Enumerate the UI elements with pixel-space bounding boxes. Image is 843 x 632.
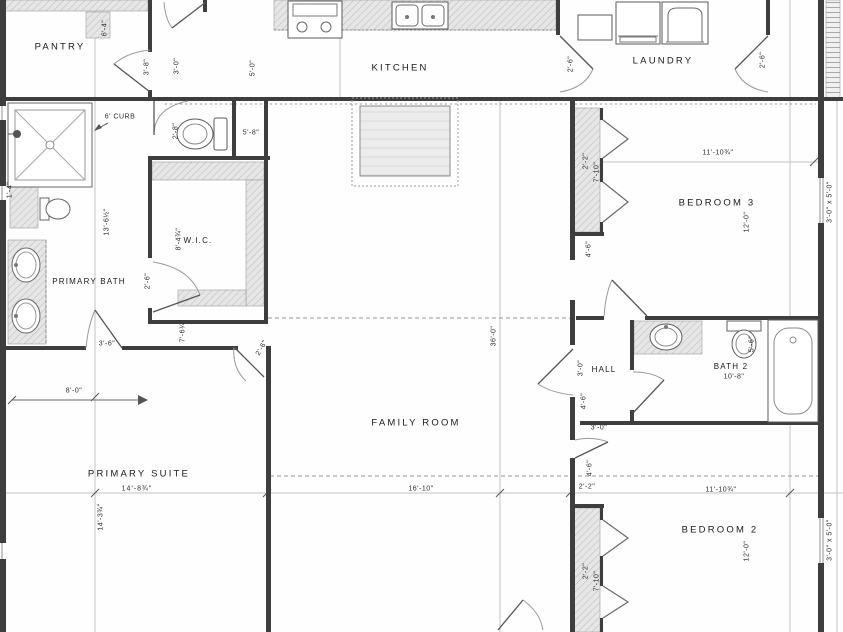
wic-shelf-bottom bbox=[178, 290, 246, 306]
dim-window-bedroom2: 3'-0" x 5'-0" bbox=[827, 519, 834, 561]
dim-b2-closet-width: 7'-10" bbox=[594, 571, 601, 592]
dim-linen-closet: 5'-8" bbox=[243, 130, 259, 137]
dim-hall-a: 3'-0" bbox=[578, 360, 585, 376]
dim-b3-closet-depth: 2'-2" bbox=[583, 153, 590, 169]
shower-head bbox=[13, 130, 21, 138]
toilet-compartment bbox=[10, 186, 38, 228]
dim-b3-wall: 4'-6" bbox=[586, 241, 593, 257]
room-size-bath2: 10'-8" bbox=[724, 374, 745, 381]
dim-b2-jog: 2'-2" bbox=[579, 484, 595, 491]
dim-suite-offset: 8'-0" bbox=[66, 388, 82, 395]
dim-pantry-width: 6'-4" bbox=[102, 20, 109, 36]
dim-wic-length: 7'-6¼" bbox=[180, 320, 187, 343]
dim-door-b: 3'-0" bbox=[174, 58, 181, 74]
floor-plan-drawing bbox=[0, 0, 843, 632]
dim-family-width: 16'-10" bbox=[408, 486, 433, 493]
room-width-bedroom2: 11'-10¾" bbox=[705, 487, 736, 494]
room-label-bedroom3: BEDROOM 3 bbox=[679, 198, 756, 208]
laundry-fixtures bbox=[578, 2, 708, 44]
room-depth-bedroom3: 12'-0" bbox=[744, 212, 751, 233]
room-depth-bedroom2: 12'-0" bbox=[744, 541, 751, 562]
dim-bath-length: 13'-6½" bbox=[104, 208, 111, 235]
floor-plan-canvas: PANTRY KITCHEN LAUNDRY PRIMARY BATH W.I.… bbox=[0, 0, 843, 632]
laundry-cabinet bbox=[578, 15, 612, 40]
dim-hall-door: 3'-0" bbox=[591, 425, 607, 432]
toilet-tank bbox=[214, 118, 227, 150]
room-size-primary-suite: 14'-8¾" bbox=[122, 486, 153, 493]
dim-overall-depth: 36'-0" bbox=[491, 326, 498, 347]
dim-suite-length: 14'-3¾" bbox=[98, 503, 105, 530]
wc-bowl bbox=[46, 199, 70, 219]
wic-shelf-right bbox=[246, 180, 264, 306]
room-label-wic: W.I.C. bbox=[184, 237, 213, 245]
bath2-fixtures bbox=[650, 320, 818, 422]
dim-left-wall: 1'-4" bbox=[7, 182, 14, 198]
room-label-bedroom2: BEDROOM 2 bbox=[682, 525, 759, 535]
dim-window-bedroom3: 3'-0" x 5'-0" bbox=[827, 181, 834, 223]
room-width-bedroom3: 11'-10¾" bbox=[702, 150, 733, 157]
dim-water-closet: 2'-8" bbox=[173, 123, 180, 139]
dim-wic-width: 8'-4¾" bbox=[176, 228, 183, 251]
dim-laundry-door-left: 2'-6" bbox=[568, 56, 575, 72]
room-label-laundry: LAUNDRY bbox=[633, 56, 694, 66]
walls bbox=[0, 0, 843, 632]
room-label-primary-bath: PRIMARY BATH bbox=[52, 278, 126, 286]
dim-b3-closet-width: 7'-10" bbox=[594, 162, 601, 183]
dim-wic-door: 2'-6" bbox=[145, 273, 152, 289]
dim-door-c: 5'-0" bbox=[250, 60, 257, 76]
room-label-family-room: FAMILY ROOM bbox=[371, 418, 460, 428]
dim-bath2-a: 5'-6" bbox=[749, 336, 756, 352]
note-shower-curb: 6' CURB bbox=[105, 114, 136, 121]
dim-b2-wall: 4'-6" bbox=[587, 460, 594, 476]
room-label-primary-suite: PRIMARY SUITE bbox=[88, 469, 190, 479]
powder-room-fixtures bbox=[177, 118, 227, 150]
room-label-bath2: BATH 2 bbox=[714, 363, 749, 371]
room-label-hall: HALL bbox=[592, 366, 617, 374]
kitchen-island bbox=[360, 106, 450, 176]
room-label-kitchen: KITCHEN bbox=[371, 63, 428, 73]
dim-door-a: 3'-8" bbox=[144, 59, 151, 75]
dim-hall-b: 4'-6" bbox=[581, 393, 588, 409]
dimension-ticks bbox=[91, 158, 818, 497]
dim-b2-closet-depth: 2'-2" bbox=[583, 563, 590, 579]
dim-bath-door: 3'-6" bbox=[99, 341, 115, 348]
dim-laundry-door-right: 2'-6" bbox=[760, 52, 767, 68]
wic-shelf-top bbox=[152, 162, 264, 180]
room-label-pantry: PANTRY bbox=[35, 42, 86, 52]
